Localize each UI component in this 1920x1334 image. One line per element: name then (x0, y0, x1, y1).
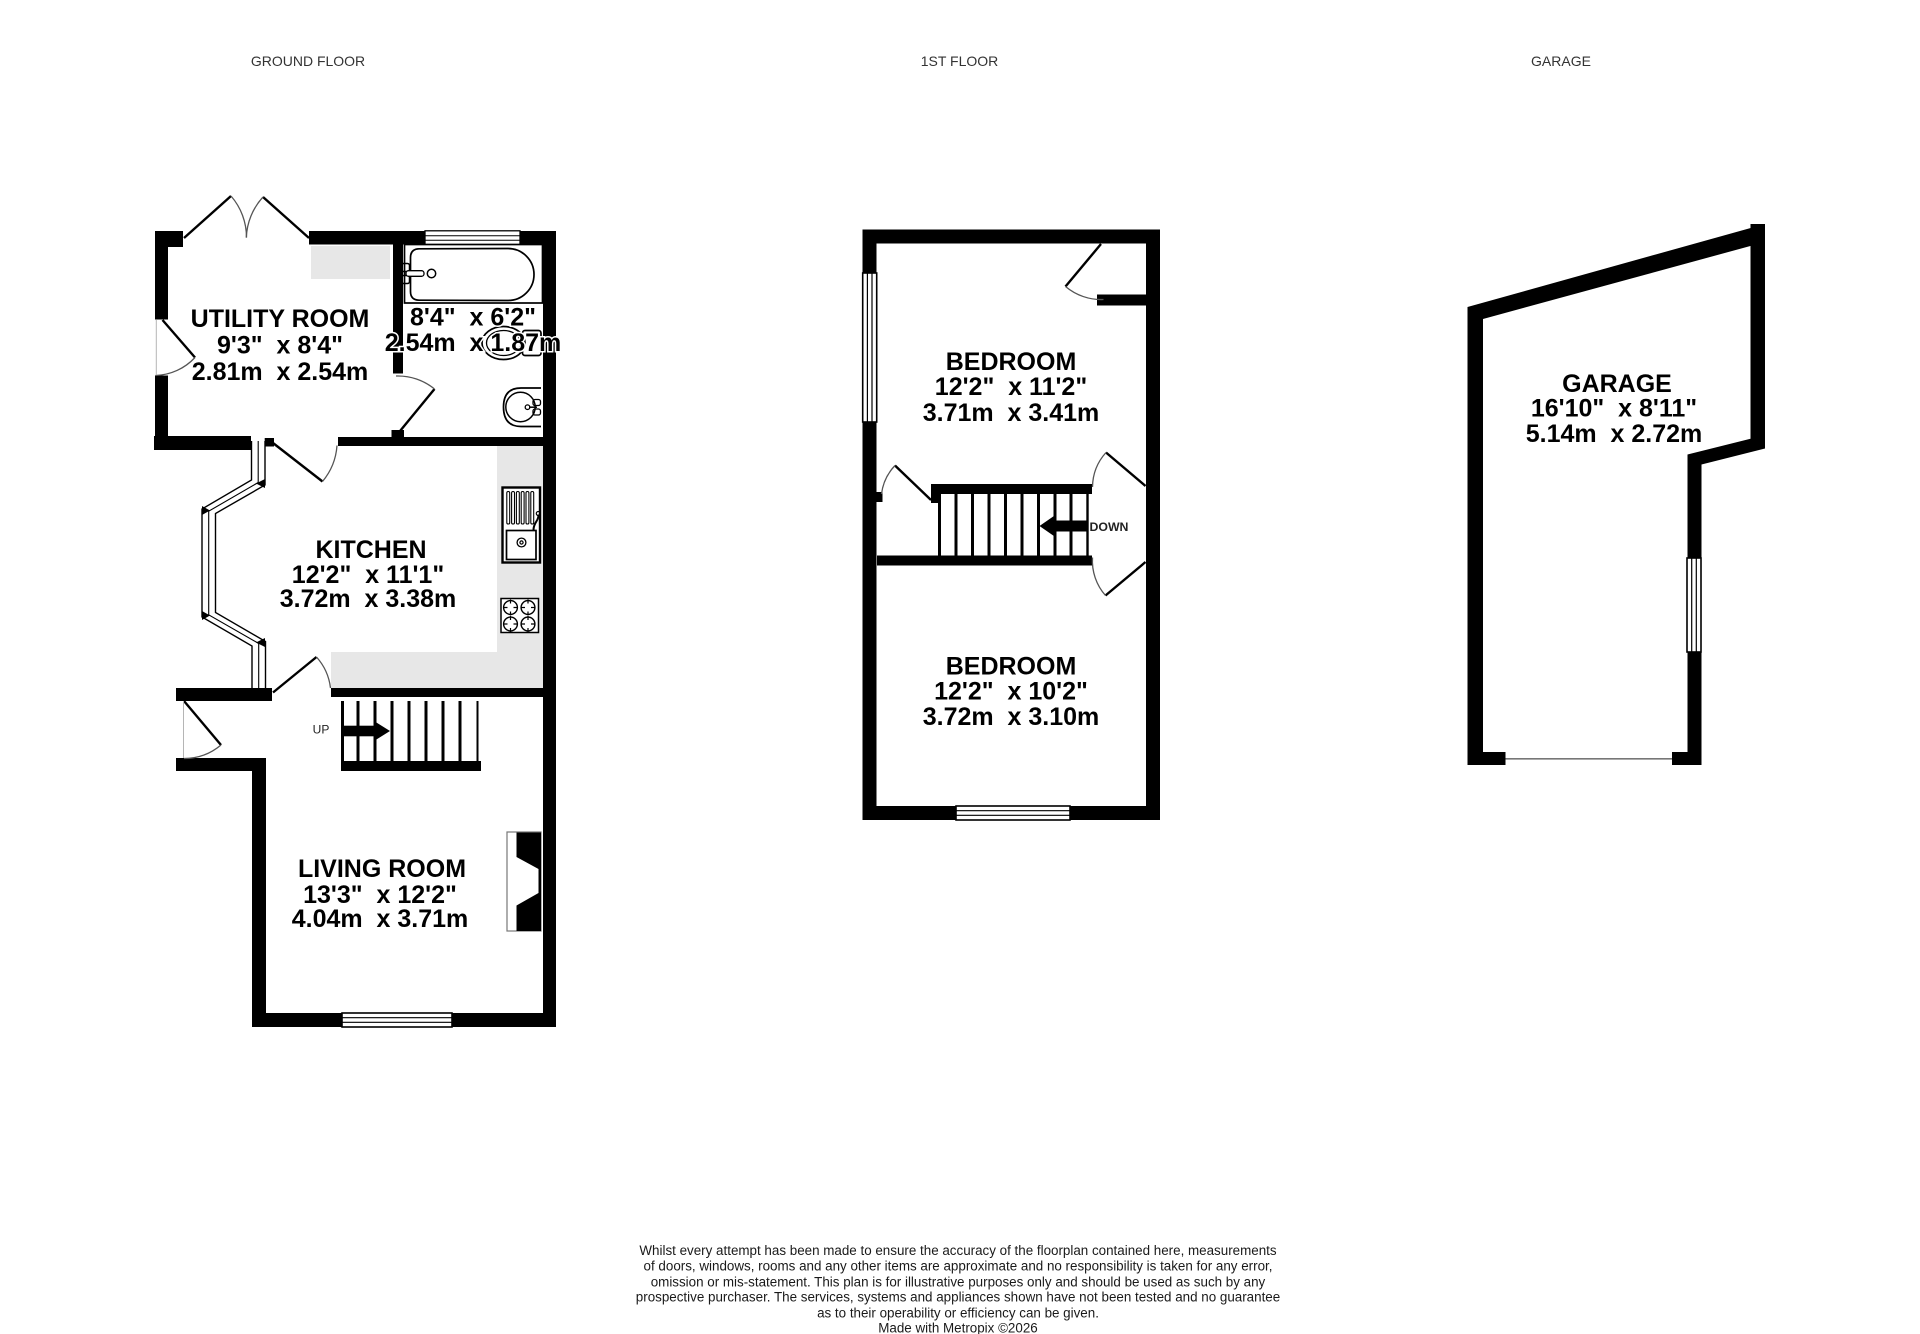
svg-text:16'10" x 8'11": 16'10" x 8'11" (1531, 395, 1697, 423)
svg-text:5.14m x 2.72m: 5.14m x 2.72m (1526, 420, 1703, 448)
svg-text:KITCHEN: KITCHEN (315, 536, 426, 564)
svg-text:1ST FLOOR: 1ST FLOOR (921, 53, 999, 69)
svg-text:8'4" x 6'2": 8'4" x 6'2" (410, 304, 536, 332)
svg-text:12'2" x 10'2": 12'2" x 10'2" (934, 678, 1088, 706)
svg-text:BEDROOM: BEDROOM (946, 348, 1077, 376)
svg-text:prospective purchaser. The ser: prospective purchaser. The services, sys… (636, 1290, 1280, 1305)
svg-text:3.72m x 3.38m: 3.72m x 3.38m (280, 585, 457, 613)
svg-text:UTILITY ROOM: UTILITY ROOM (191, 305, 370, 333)
svg-text:Made with Metropix ©2026: Made with Metropix ©2026 (878, 1321, 1037, 1334)
svg-text:GARAGE: GARAGE (1531, 53, 1591, 69)
svg-text:GROUND FLOOR: GROUND FLOOR (251, 53, 365, 69)
svg-text:LIVING ROOM: LIVING ROOM (298, 855, 466, 883)
svg-text:DOWN: DOWN (1090, 520, 1129, 534)
svg-text:3.72m x 3.10m: 3.72m x 3.10m (923, 703, 1100, 731)
svg-text:as to their operability or eff: as to their operability or efficiency ca… (817, 1306, 1099, 1321)
svg-text:UP: UP (313, 723, 330, 737)
svg-text:Whilst every attempt has been: Whilst every attempt has been made to en… (639, 1243, 1276, 1258)
svg-text:2.81m x 2.54m: 2.81m x 2.54m (192, 358, 369, 386)
svg-text:4.04m x 3.71m: 4.04m x 3.71m (292, 905, 469, 933)
svg-text:omission or mis-statement. Thi: omission or mis-statement. This plan is … (651, 1275, 1266, 1290)
svg-text:3.71m x 3.41m: 3.71m x 3.41m (923, 399, 1100, 427)
svg-text:of doors, windows, rooms and a: of doors, windows, rooms and any other i… (644, 1259, 1273, 1274)
svg-text:BEDROOM: BEDROOM (946, 653, 1077, 681)
svg-text:9'3" x 8'4": 9'3" x 8'4" (217, 332, 343, 360)
svg-text:2.54m x 1.87m: 2.54m x 1.87m (385, 329, 562, 357)
svg-text:12'2" x 11'2": 12'2" x 11'2" (935, 373, 1087, 401)
